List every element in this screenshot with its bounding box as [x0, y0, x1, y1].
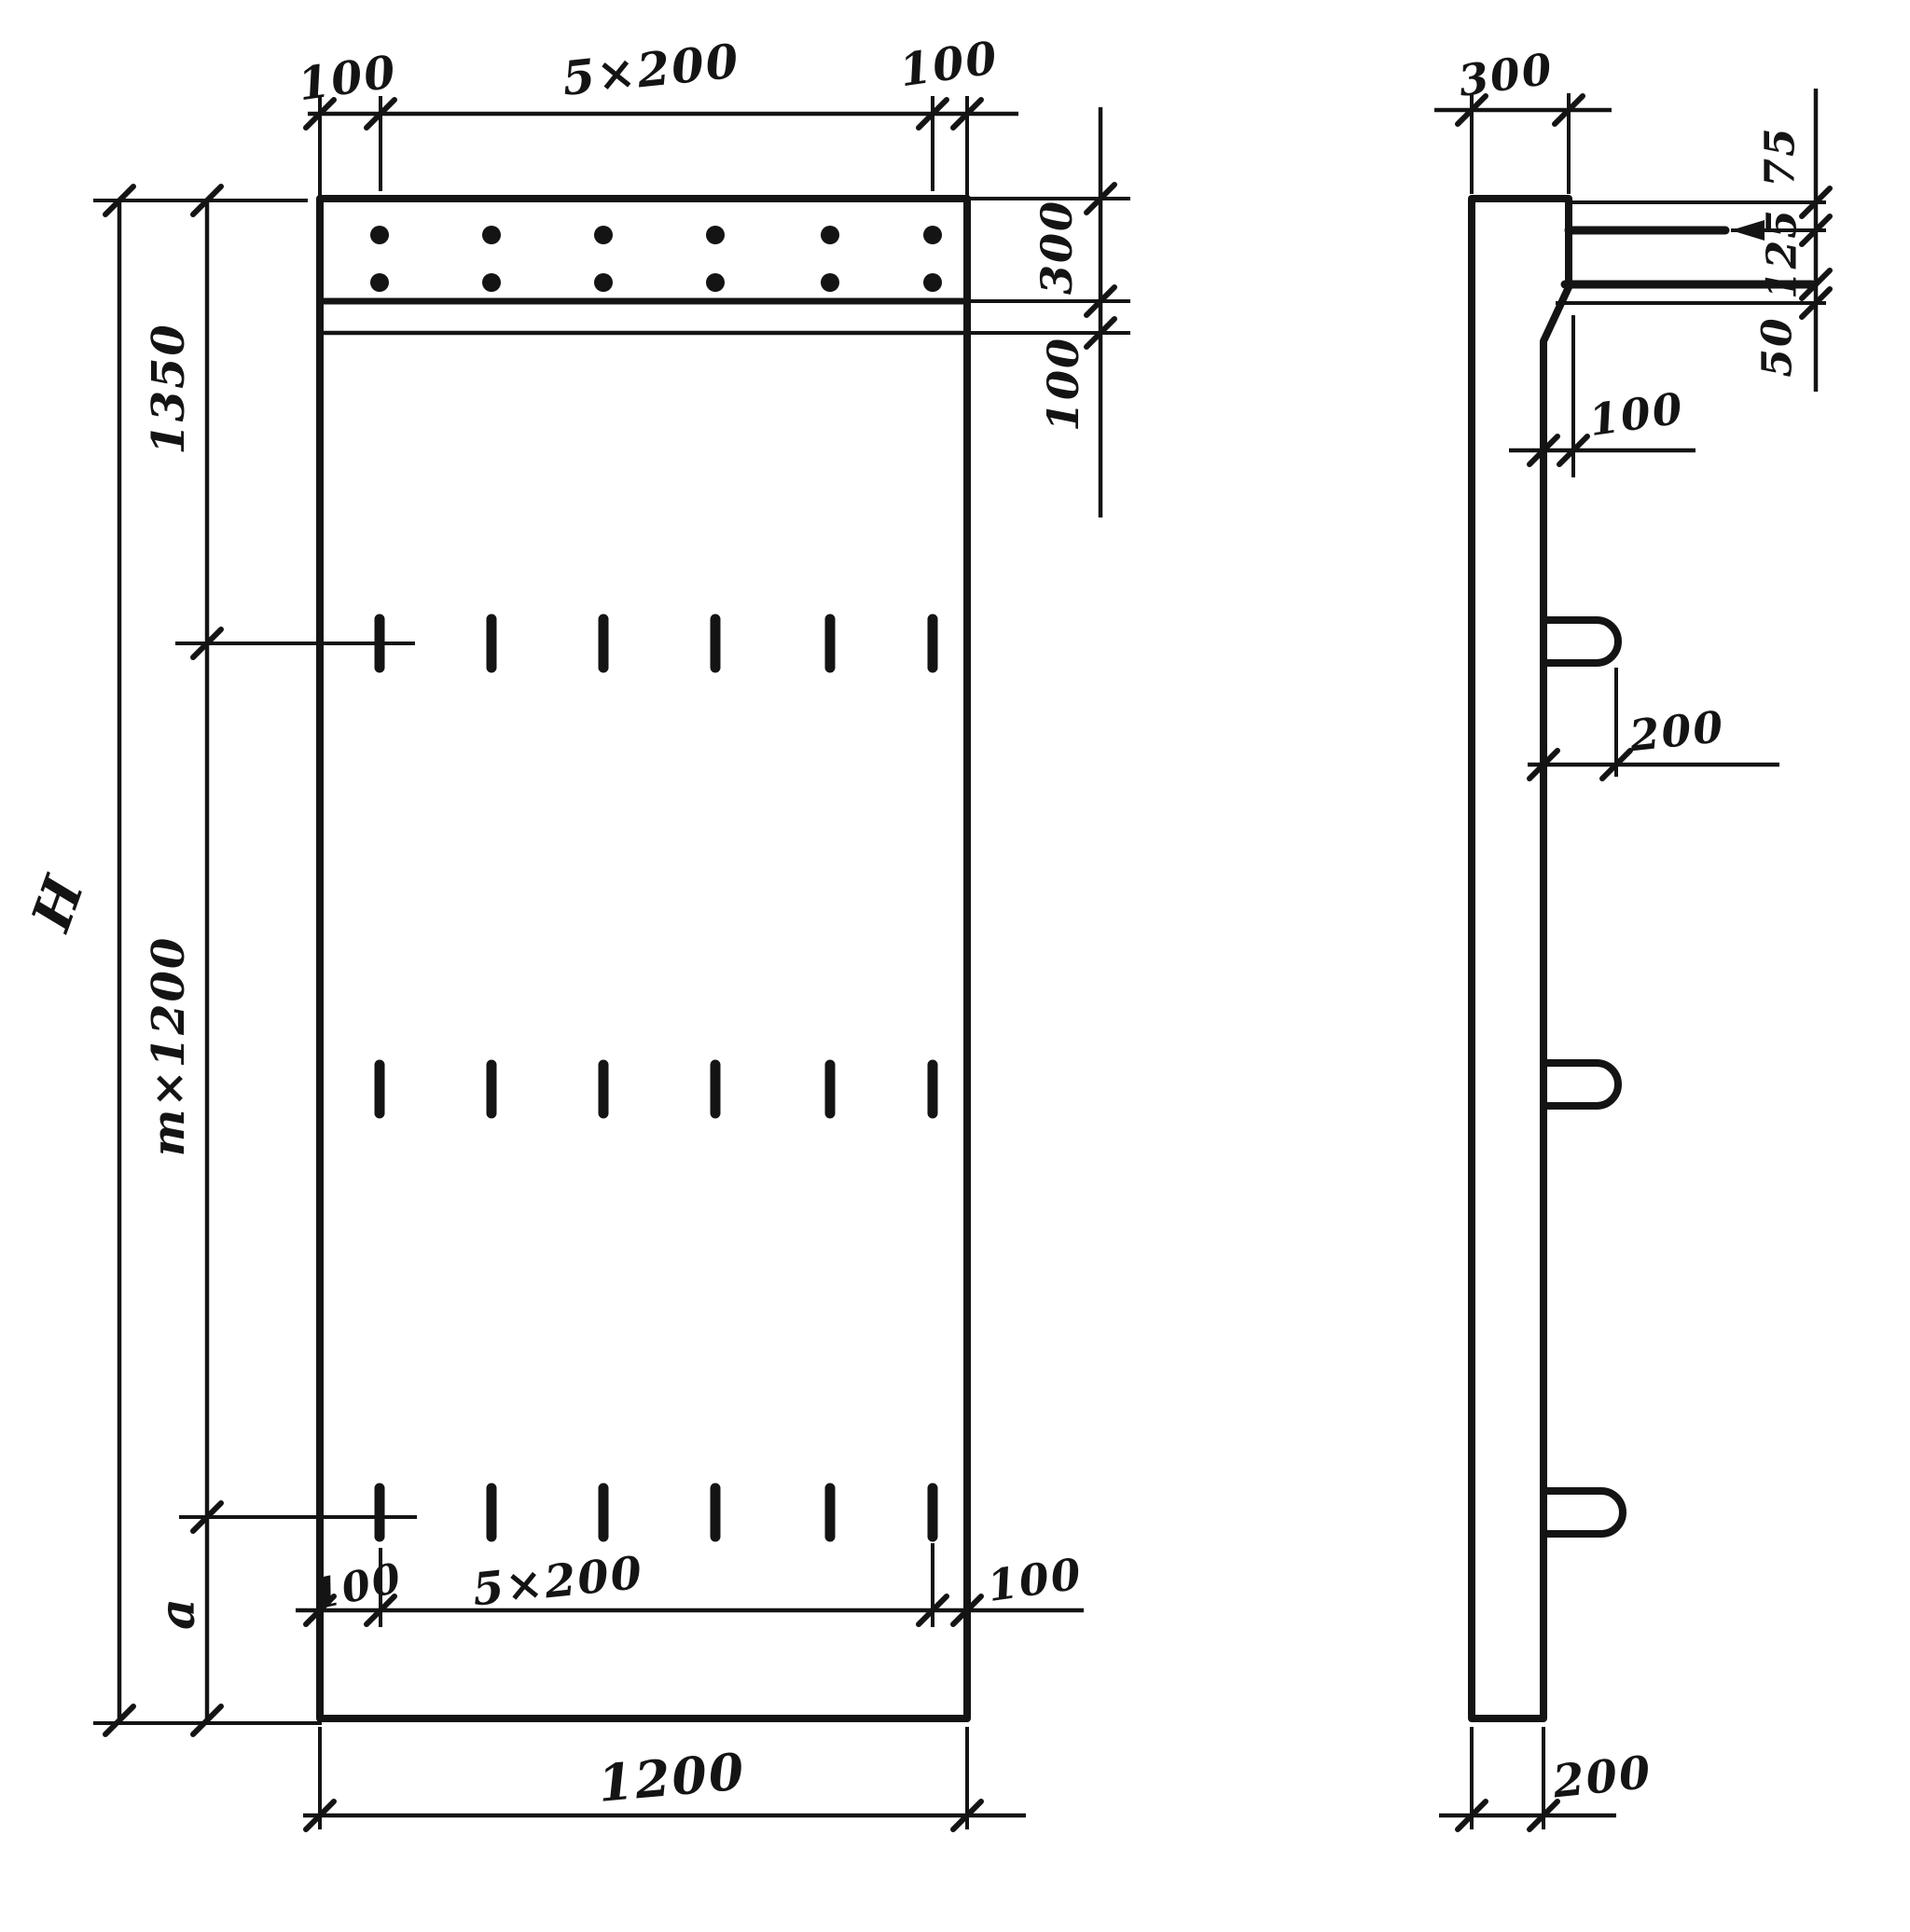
anchor-dot — [370, 226, 389, 244]
dim-label-bar-top-offset: 75 — [1756, 126, 1804, 186]
technical-drawing-page: 100 5×200 100 300 100 1350 m×1200 a — [0, 0, 1910, 1932]
dim-label-bottom-right-margin: 100 — [984, 1548, 1086, 1611]
anchor-dot — [923, 273, 942, 292]
front-left-dimensions: 1350 m×1200 a H — [19, 186, 417, 1734]
dim-label-1350: 1350 — [143, 323, 195, 455]
lifting-loop — [1543, 620, 1618, 663]
dim-label-overall-width: 1200 — [596, 1741, 748, 1814]
dim-label-band-height: 300 — [1031, 200, 1082, 295]
lifting-loop — [1543, 1491, 1623, 1534]
front-overall-width-dimension: 1200 — [303, 1727, 1026, 1829]
anchor-dot-rows — [370, 226, 942, 292]
anchor-dot — [594, 226, 613, 244]
dim-label-band-offset: 100 — [1038, 337, 1088, 432]
anchor-dot — [482, 273, 501, 292]
drawing-canvas: 100 5×200 100 300 100 1350 m×1200 a — [0, 0, 1910, 1932]
dim-label-side-top-width: 300 — [1455, 43, 1557, 106]
front-right-dimension: 300 100 — [970, 107, 1130, 517]
side-top-dimension: 300 — [1434, 43, 1612, 194]
panel-outline — [320, 199, 967, 1718]
anchor-dot — [706, 273, 725, 292]
side-step-dimension: 100 — [1509, 315, 1695, 477]
side-bottom-dimension: 200 — [1439, 1727, 1654, 1829]
side-right-dimension-chain: 75 125 50 — [1753, 89, 1830, 392]
dim-label-overall-height: H — [19, 867, 97, 941]
anchor-dot — [821, 273, 839, 292]
anchor-dot — [594, 273, 613, 292]
anchor-dot — [706, 226, 725, 244]
dim-label-bar-bottom-offset: 50 — [1753, 316, 1801, 377]
anchor-dot — [821, 226, 839, 244]
side-loop-dimension: 200 — [1528, 668, 1779, 779]
dim-label-top-right-margin: 100 — [896, 32, 1002, 97]
dim-label-bottom-thickness: 200 — [1550, 1746, 1654, 1809]
front-top-dimension: 100 5×200 100 — [295, 32, 1018, 196]
dim-label-m-x-1200: m×1200 — [143, 936, 195, 1157]
front-view: 100 5×200 100 300 100 1350 m×1200 a — [19, 32, 1130, 1829]
dim-label-top-left-margin: 100 — [295, 46, 400, 111]
anchor-dot — [482, 226, 501, 244]
dim-label-bottom-spacing: 5×200 — [470, 1547, 646, 1617]
side-view: 300 75 125 50 100 200 — [1434, 43, 1830, 1829]
anchor-dot — [923, 226, 942, 244]
loop-mark-rows — [380, 619, 933, 1537]
lifting-loops — [1543, 620, 1623, 1534]
dim-label-step-depth: 100 — [1585, 382, 1687, 446]
dim-label-top-spacing: 5×200 — [560, 33, 742, 106]
dim-label-bar-middle-offset: 125 — [1758, 208, 1806, 299]
dim-label-a: a — [149, 1596, 206, 1630]
anchor-dot — [370, 273, 389, 292]
lifting-loop — [1543, 1063, 1618, 1106]
dim-label-loop-length: 200 — [1626, 701, 1727, 761]
